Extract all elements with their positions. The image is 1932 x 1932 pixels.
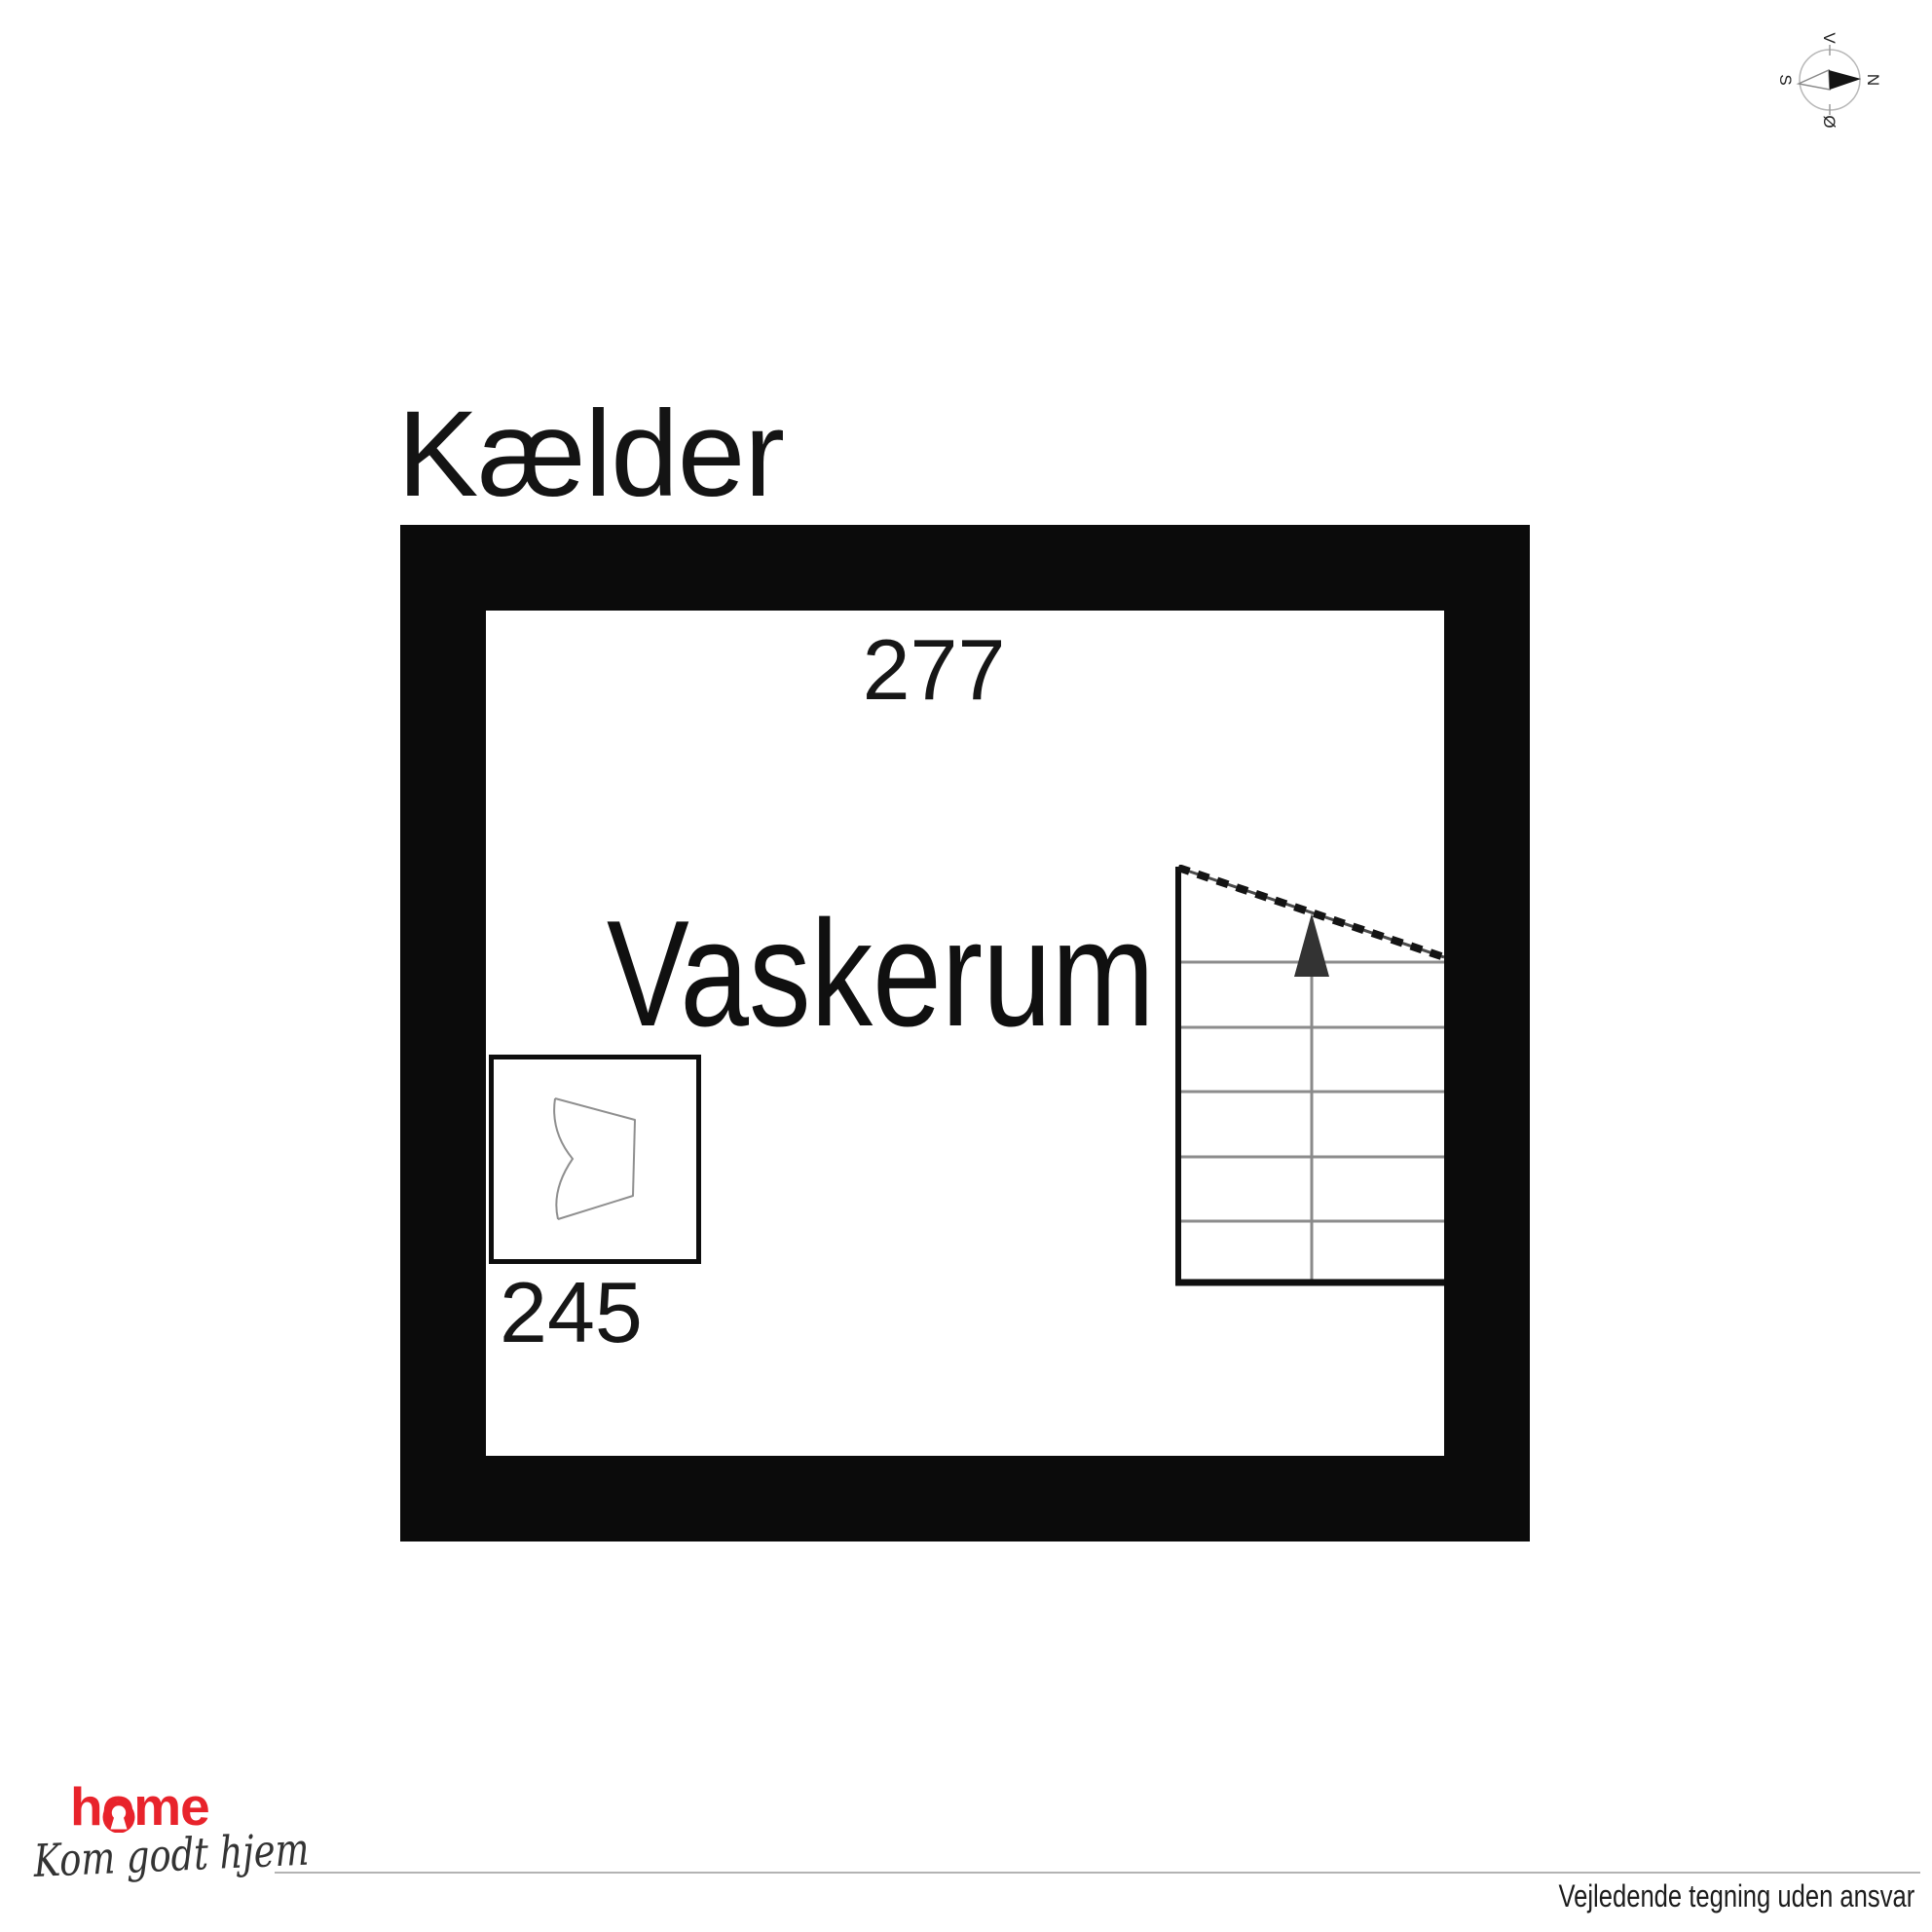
sink-basin-icon — [494, 1059, 696, 1259]
dimension-depth-label: 245 — [500, 1270, 643, 1356]
dimension-width-label: 277 — [861, 627, 1007, 713]
footer-divider — [275, 1872, 1920, 1874]
compass-label-west: V — [1820, 32, 1839, 44]
room-name-label: Vaskerum — [607, 898, 1155, 1049]
home-logo: home — [70, 1783, 209, 1832]
brand-tagline: Kom godt hjem — [33, 1827, 310, 1883]
compass-icon: N S V Ø — [1769, 19, 1890, 140]
floor-plan: 277 Vaskerum 245 — [400, 525, 1530, 1542]
up-arrow-icon — [1294, 913, 1329, 977]
compass-label-east: Ø — [1820, 115, 1839, 128]
room-vaskerum: 277 Vaskerum 245 — [486, 611, 1444, 1456]
compass-needle-north — [1829, 70, 1861, 90]
utility-sink-box — [489, 1055, 701, 1264]
compass-label-south: S — [1776, 74, 1795, 85]
floor-title: Kælder — [397, 393, 784, 515]
keyhole-icon — [101, 1798, 136, 1833]
compass-needle-tail — [1799, 70, 1830, 90]
compass-label-north: N — [1864, 74, 1882, 86]
staircase — [1175, 865, 1444, 1286]
disclaimer-text: Vejledende tegning uden ansvar — [1558, 1877, 1914, 1914]
page-root: N S V Ø Kælder 277 Vaskerum 245 — [0, 0, 1932, 1932]
